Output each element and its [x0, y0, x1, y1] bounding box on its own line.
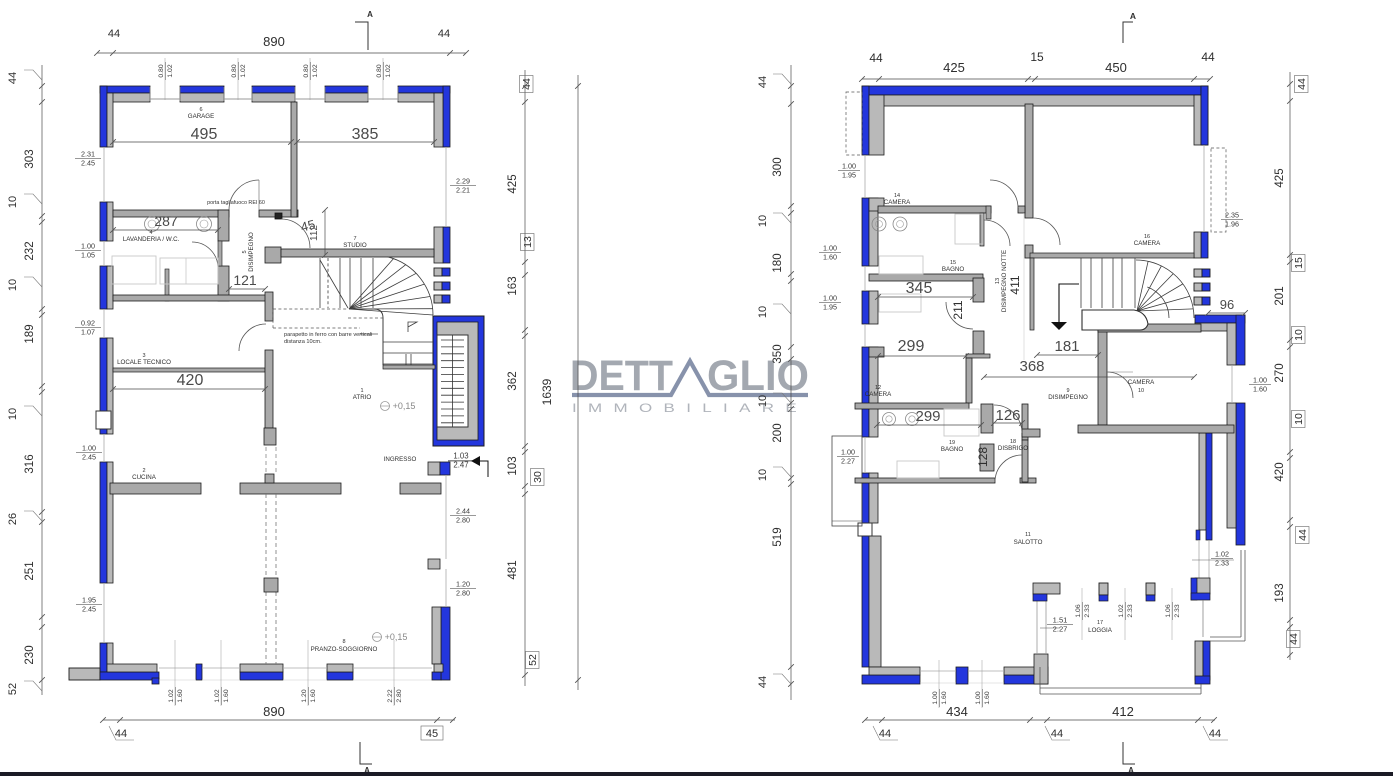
svg-text:10: 10 [757, 306, 769, 318]
svg-text:112: 112 [309, 225, 320, 241]
svg-text:52: 52 [7, 683, 19, 695]
svg-text:316: 316 [24, 454, 36, 473]
svg-text:13: 13 [522, 236, 534, 248]
svg-text:1.00: 1.00 [842, 162, 856, 171]
svg-text:10: 10 [757, 469, 769, 481]
svg-text:385: 385 [352, 126, 379, 143]
svg-text:17: 17 [1097, 620, 1103, 626]
svg-text:44: 44 [757, 76, 769, 88]
svg-text:parapetto in ferro con barre v: parapetto in ferro con barre verticali [284, 332, 372, 338]
svg-text:2.27: 2.27 [1053, 625, 1068, 634]
svg-text:1.60: 1.60 [177, 689, 184, 702]
svg-text:26: 26 [7, 513, 19, 525]
svg-text:126: 126 [995, 407, 1020, 424]
svg-text:44: 44 [879, 728, 891, 740]
svg-text:201: 201 [1274, 286, 1286, 305]
svg-text:30: 30 [532, 471, 544, 483]
svg-text:BAGNO: BAGNO [941, 446, 964, 453]
svg-text:481: 481 [507, 560, 519, 579]
svg-text:425: 425 [1274, 168, 1286, 187]
svg-text:1.00: 1.00 [823, 244, 837, 253]
svg-text:A: A [367, 10, 373, 19]
svg-text:2.45: 2.45 [81, 159, 95, 168]
svg-text:2.47: 2.47 [453, 461, 468, 470]
svg-text:0.80: 0.80 [158, 64, 165, 77]
svg-text:96: 96 [1220, 297, 1234, 312]
svg-text:BAGNO: BAGNO [942, 266, 965, 273]
svg-text:434: 434 [946, 704, 968, 719]
svg-text:1.00: 1.00 [841, 448, 855, 457]
svg-text:SALOTTO: SALOTTO [1014, 539, 1043, 546]
svg-text:44: 44 [1201, 50, 1215, 64]
svg-text:10: 10 [1138, 388, 1144, 394]
svg-text:251: 251 [24, 561, 36, 580]
svg-text:495: 495 [191, 126, 218, 143]
svg-text:1.02: 1.02 [167, 64, 174, 77]
svg-text:1.07: 1.07 [81, 328, 95, 337]
svg-text:2.33: 2.33 [1084, 604, 1091, 617]
svg-text:1.05: 1.05 [81, 251, 95, 260]
svg-text:44: 44 [869, 51, 883, 65]
svg-text:DISBRIGO: DISBRIGO [998, 445, 1028, 452]
svg-text:CAMERA: CAMERA [1134, 240, 1161, 247]
svg-text:44: 44 [757, 676, 769, 688]
svg-text:1.02: 1.02 [214, 689, 221, 702]
svg-text:2.33: 2.33 [1127, 604, 1134, 617]
svg-text:DISIMPEGNO NOTTE: DISIMPEGNO NOTTE [1001, 250, 1008, 312]
svg-text:CAMERA: CAMERA [884, 199, 911, 206]
svg-text:450: 450 [1105, 60, 1127, 75]
svg-text:2.80: 2.80 [456, 516, 470, 525]
svg-text:1.00: 1.00 [81, 242, 95, 251]
svg-text:1.20: 1.20 [456, 580, 470, 589]
svg-text:1.02: 1.02 [1118, 604, 1125, 617]
svg-text:+0,15: +0,15 [385, 632, 408, 642]
svg-text:299: 299 [898, 338, 925, 355]
svg-text:1.51: 1.51 [1053, 616, 1068, 625]
svg-text:425: 425 [507, 174, 519, 193]
svg-text:10: 10 [7, 408, 19, 420]
svg-text:10: 10 [1293, 413, 1305, 425]
svg-text:890: 890 [263, 34, 285, 49]
svg-text:44: 44 [115, 728, 127, 740]
svg-text:232: 232 [24, 241, 36, 260]
svg-text:44: 44 [7, 72, 19, 84]
svg-text:1.60: 1.60 [984, 691, 991, 704]
svg-text:2.33: 2.33 [1215, 559, 1229, 568]
svg-text:890: 890 [263, 704, 285, 719]
svg-text:44: 44 [1296, 78, 1308, 90]
svg-text:1.95: 1.95 [82, 596, 96, 605]
svg-text:412: 412 [1112, 704, 1134, 719]
svg-text:180: 180 [772, 253, 784, 272]
svg-text:10: 10 [757, 395, 769, 407]
svg-text:1.20: 1.20 [301, 689, 308, 702]
svg-text:0.80: 0.80 [376, 64, 383, 77]
svg-text:CAMERA: CAMERA [1128, 379, 1155, 386]
svg-text:2.27: 2.27 [841, 457, 855, 466]
svg-text:1.60: 1.60 [310, 689, 317, 702]
svg-text:2.45: 2.45 [82, 453, 96, 462]
svg-text:ATRIO: ATRIO [353, 394, 372, 401]
svg-text:211: 211 [951, 300, 965, 319]
svg-text:1.02: 1.02 [168, 689, 175, 702]
svg-text:287: 287 [154, 213, 178, 229]
svg-text:STUDIO: STUDIO [343, 242, 367, 249]
svg-text:163: 163 [507, 276, 519, 295]
svg-text:1.00: 1.00 [1253, 376, 1267, 385]
svg-text:52: 52 [527, 654, 539, 666]
svg-text:44: 44 [1288, 633, 1300, 645]
svg-text:420: 420 [177, 372, 204, 389]
svg-text:CAMERA: CAMERA [865, 391, 892, 398]
svg-text:15: 15 [1030, 50, 1044, 64]
svg-text:193: 193 [1274, 583, 1286, 602]
svg-text:411: 411 [1008, 275, 1022, 294]
svg-text:2.45: 2.45 [82, 605, 96, 614]
svg-text:1.96: 1.96 [1225, 220, 1239, 229]
svg-text:44: 44 [438, 28, 450, 40]
svg-text:A: A [1130, 11, 1136, 21]
svg-text:LOCALE TECNICO: LOCALE TECNICO [117, 359, 171, 366]
svg-text:10: 10 [1293, 329, 1305, 341]
svg-text:8: 8 [342, 639, 345, 645]
svg-text:128: 128 [976, 447, 990, 467]
svg-text:0.80: 0.80 [303, 64, 310, 77]
svg-text:2.44: 2.44 [456, 507, 470, 516]
svg-text:GARAGE: GARAGE [188, 113, 214, 120]
svg-text:350: 350 [772, 344, 784, 363]
svg-text:270: 270 [1274, 363, 1286, 382]
svg-text:2.35: 2.35 [1225, 211, 1239, 220]
svg-text:44: 44 [1051, 728, 1063, 740]
svg-text:1639: 1639 [540, 378, 554, 405]
svg-text:GLIO: GLIO [707, 352, 809, 400]
svg-text:1.06: 1.06 [1165, 604, 1172, 617]
svg-text:10: 10 [7, 196, 19, 208]
svg-text:1.95: 1.95 [823, 303, 837, 312]
svg-text:362: 362 [507, 371, 519, 390]
svg-text:2.31: 2.31 [81, 150, 95, 159]
svg-text:2.80: 2.80 [396, 689, 403, 702]
svg-text:2.22: 2.22 [387, 689, 394, 702]
svg-text:10: 10 [757, 215, 769, 227]
svg-text:INGRESSO: INGRESSO [384, 456, 417, 463]
svg-text:420: 420 [1274, 462, 1286, 481]
svg-text:10: 10 [7, 279, 19, 291]
svg-text:1.60: 1.60 [941, 691, 948, 704]
svg-text:1.60: 1.60 [223, 689, 230, 702]
svg-text:303: 303 [24, 149, 36, 168]
svg-text:299: 299 [915, 408, 940, 425]
svg-text:519: 519 [772, 527, 784, 546]
svg-text:IMMOBILIARE: IMMOBILIARE [572, 401, 808, 415]
svg-text:44: 44 [1209, 728, 1221, 740]
svg-text:LAVANDERIA / W.C.: LAVANDERIA / W.C. [123, 236, 180, 243]
svg-text:1.02: 1.02 [240, 64, 247, 77]
svg-text:1.00: 1.00 [82, 444, 96, 453]
svg-text:LOGGIA: LOGGIA [1088, 627, 1113, 634]
svg-text:103: 103 [507, 456, 519, 475]
svg-text:DISIMPEGNO: DISIMPEGNO [248, 232, 255, 272]
svg-text:189: 189 [24, 324, 36, 343]
svg-text:425: 425 [943, 60, 965, 75]
svg-text:0.92: 0.92 [81, 319, 95, 328]
svg-text:1.06: 1.06 [1075, 604, 1082, 617]
svg-text:368: 368 [1019, 358, 1044, 375]
svg-text:CUCINA: CUCINA [132, 474, 157, 481]
svg-text:15: 15 [1293, 257, 1305, 269]
svg-text:300: 300 [772, 157, 784, 176]
svg-text:1.02: 1.02 [312, 64, 319, 77]
svg-text:+0,15: +0,15 [393, 401, 416, 411]
svg-text:200: 200 [772, 423, 784, 442]
svg-text:230: 230 [24, 645, 36, 664]
svg-text:45: 45 [426, 728, 438, 740]
svg-text:1.60: 1.60 [823, 253, 837, 262]
svg-text:DETT: DETT [570, 352, 673, 400]
svg-text:2.21: 2.21 [456, 186, 470, 195]
svg-text:1.03: 1.03 [453, 452, 468, 461]
svg-text:2.33: 2.33 [1174, 604, 1181, 617]
svg-text:PRANZO-SOGGIORNO: PRANZO-SOGGIORNO [311, 646, 378, 653]
svg-text:1.00: 1.00 [975, 691, 982, 704]
svg-text:1.02: 1.02 [385, 64, 392, 77]
svg-text:1.00: 1.00 [932, 691, 939, 704]
svg-text:DISIMPEGNO: DISIMPEGNO [1048, 394, 1088, 401]
svg-text:11: 11 [1025, 532, 1031, 538]
svg-text:1.95: 1.95 [842, 171, 856, 180]
svg-text:121: 121 [233, 272, 257, 288]
svg-text:44: 44 [108, 28, 120, 40]
svg-text:2.80: 2.80 [456, 589, 470, 598]
svg-text:0.80: 0.80 [231, 64, 238, 77]
svg-text:distanza 10cm.: distanza 10cm. [284, 339, 322, 345]
svg-text:1.02: 1.02 [1215, 550, 1229, 559]
svg-text:1.60: 1.60 [1253, 385, 1267, 394]
svg-text:2.29: 2.29 [456, 177, 470, 186]
svg-text:44: 44 [1297, 529, 1309, 541]
svg-text:181: 181 [1054, 338, 1079, 355]
svg-text:345: 345 [906, 280, 933, 297]
svg-text:porta tagliafuoco REI 60: porta tagliafuoco REI 60 [207, 200, 265, 206]
svg-text:1.00: 1.00 [823, 294, 837, 303]
